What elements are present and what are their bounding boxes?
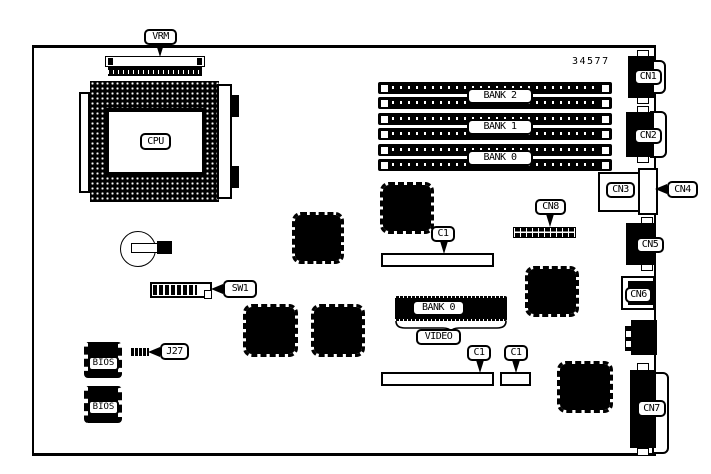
qfp-chip [292,212,344,264]
audio-jack-pin [625,330,632,338]
audio-jack-connector [631,320,657,355]
c1-callout: C1 [467,345,491,361]
vrm-pointer-icon [156,44,164,57]
dip-switch-sw1 [150,282,212,298]
cn3-label: CN3 [606,182,635,198]
cn1-label: CN1 [634,69,662,85]
bank2-label: BANK 2 [467,88,533,104]
cn1-mount-tab [637,97,649,104]
cn8-pointer-icon [546,214,554,227]
video-label: VIDEO [416,329,461,345]
c1-pointer-icon [440,241,448,254]
jumper-j27 [131,348,149,356]
qfp-chip [557,361,613,413]
vrm-connector-pins [108,67,202,76]
cn5-mount-tab [641,264,653,271]
battery-clip-end [157,241,172,254]
cpu-socket-lever-left [79,92,90,193]
cn4-label: CN4 [667,181,698,198]
cn2-mount-tab [637,156,649,163]
cache-slot [381,372,494,386]
bios-label: BIOS [88,356,119,371]
c1-pointer-icon [512,360,520,373]
cpu-socket-lever-right [217,84,232,199]
cn8-header [513,227,576,238]
motherboard-diagram: 34577 VRM CPU BANK 2 BANK 1 BANK 0 CN1 C… [0,0,711,474]
c1-callout: C1 [431,226,455,242]
cpu-label: CPU [140,133,171,150]
cn4-pointer-icon [655,184,667,194]
sw1-callout: SW1 [223,280,257,298]
c1-pointer-icon [476,360,484,373]
figure-number: 34577 [572,56,610,67]
cpu-socket-pin-top [231,95,239,117]
sw1-pointer-icon [211,284,223,294]
battery-clip [131,243,159,253]
qfp-chip [380,182,434,234]
j27-pointer-icon [148,347,160,357]
cache-slot [381,253,494,267]
bank0-label: BANK 0 [467,150,533,166]
bank1-label: BANK 1 [467,119,533,135]
j27-callout: J27 [160,343,189,360]
video-bank0-label: BANK 0 [412,300,465,316]
qfp-chip [525,266,579,317]
c1-callout: C1 [504,345,528,361]
cn2-label: CN2 [634,128,662,144]
qfp-chip [311,304,365,357]
cn7-label: CN7 [637,400,666,417]
audio-jack-pin [625,340,632,348]
bios-label: BIOS [88,400,119,415]
cn5-label: CN5 [636,237,664,253]
cn7-mount-tab [637,448,649,456]
qfp-chip [243,304,298,357]
cpu-socket-pin-bottom [231,166,239,188]
vrm-connector [105,56,205,67]
cn6-label: CN6 [625,287,652,303]
cn8-label: CN8 [535,199,566,215]
vrm-callout: VRM [144,29,177,45]
cache-slot [500,372,531,386]
